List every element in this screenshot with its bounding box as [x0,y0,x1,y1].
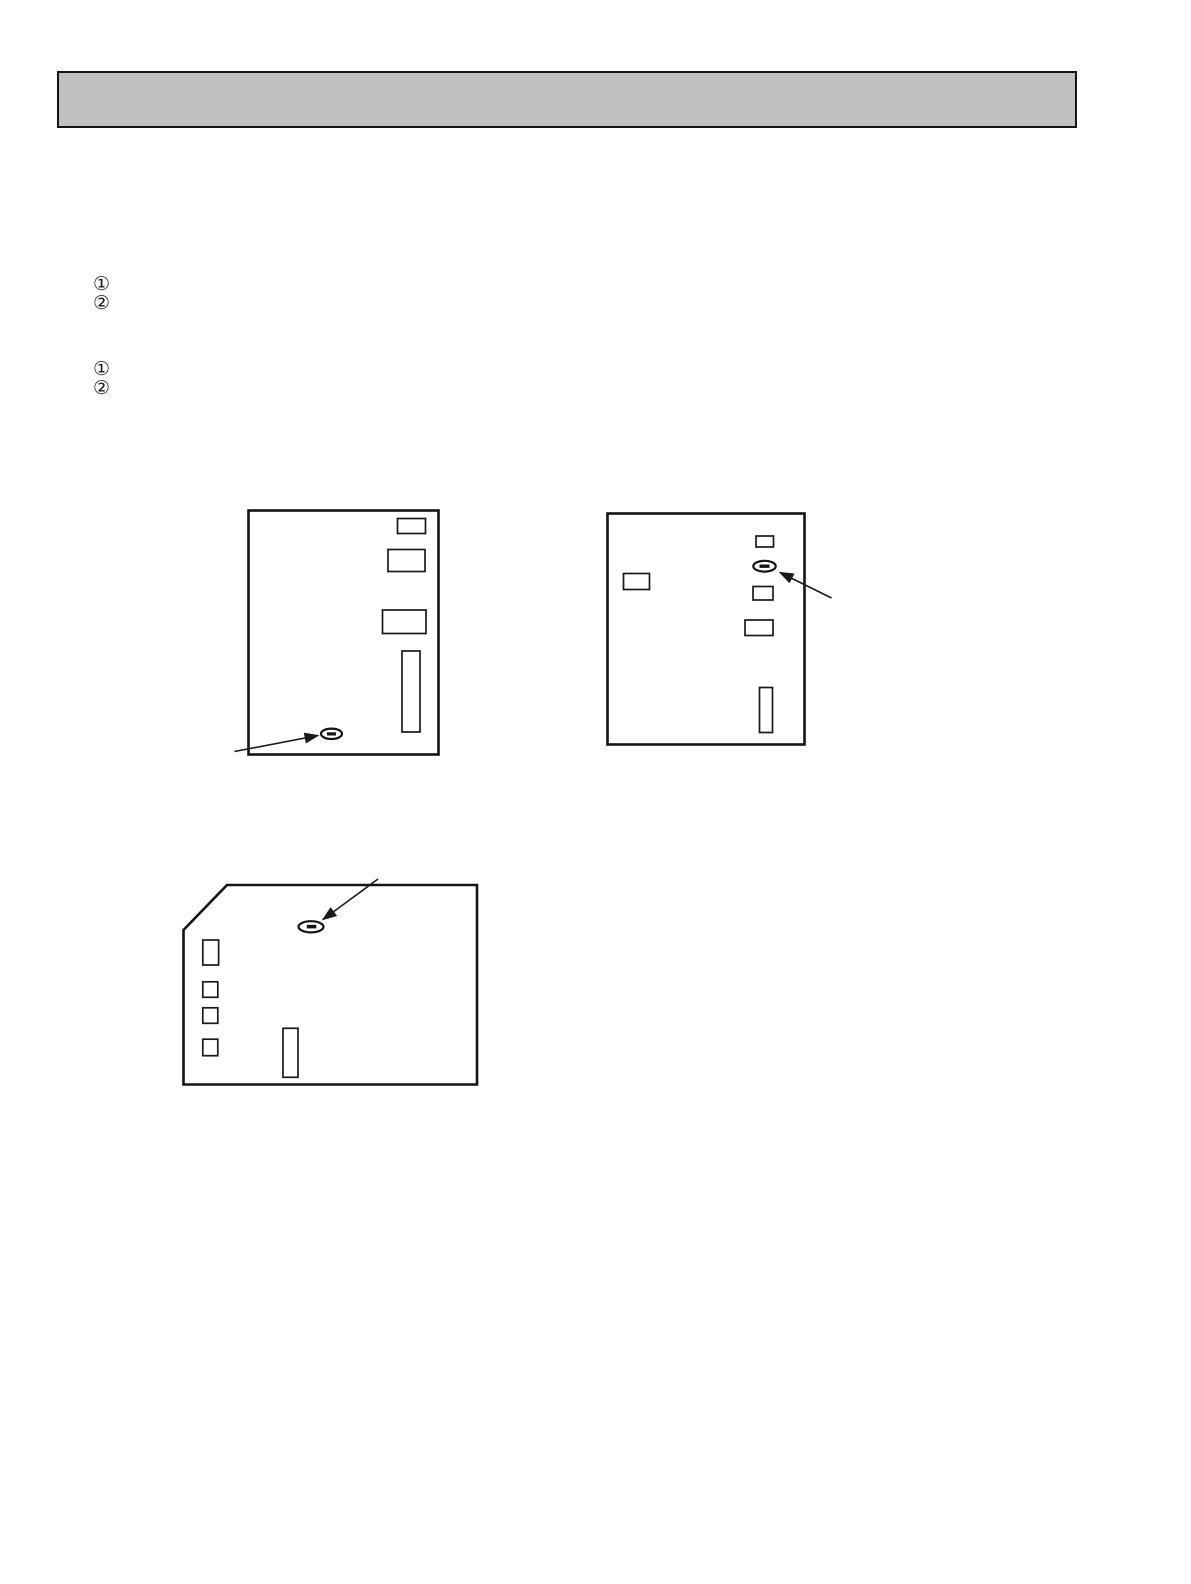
component-rect [203,1039,218,1056]
component-rect [745,620,773,636]
board-figures-canvas [0,0,1191,1584]
component-rect [388,550,425,572]
board-outline [608,514,805,745]
figure-board-2 [608,514,832,745]
document-page: ① ② ① ② [0,0,1191,1584]
connector-marker-slot [760,565,770,568]
component-rect [398,519,426,534]
connector-marker-slot [307,925,317,929]
figure-board-1 [235,511,439,755]
component-rect [203,982,218,998]
component-rect [203,1008,218,1024]
component-rect [203,940,219,965]
component-rect [283,1028,298,1077]
component-rect [383,610,427,634]
figure-board-3 [184,879,478,1085]
component-rect [760,688,773,733]
component-rect [624,574,650,590]
connector-marker-slot [327,732,336,735]
component-rect [402,651,420,732]
component-rect [753,587,773,601]
component-rect [756,536,774,547]
